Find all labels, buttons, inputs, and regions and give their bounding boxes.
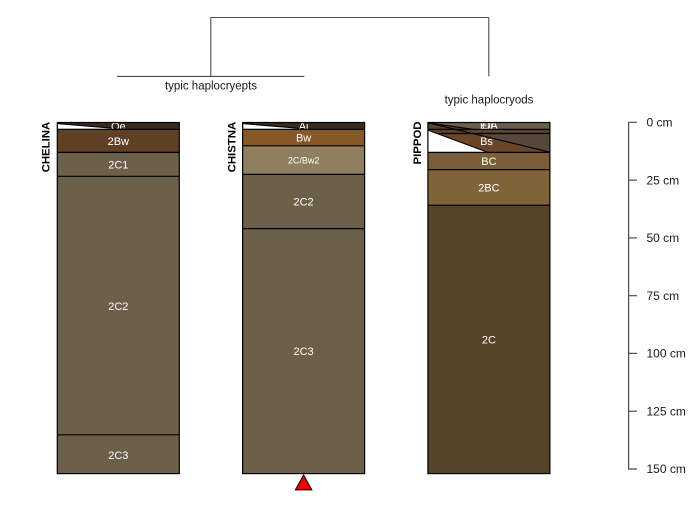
svg-text:2C3: 2C3 — [108, 450, 128, 462]
svg-text:25 cm: 25 cm — [647, 173, 680, 187]
svg-text:2BC: 2BC — [478, 182, 499, 194]
svg-text:125 cm: 125 cm — [647, 404, 686, 418]
svg-text:typic haplocryods: typic haplocryods — [445, 95, 534, 107]
svg-text:150 cm: 150 cm — [647, 462, 686, 476]
svg-text:2C2: 2C2 — [108, 301, 128, 313]
svg-text:2C3: 2C3 — [294, 346, 314, 358]
svg-text:2Bw: 2Bw — [108, 136, 129, 148]
svg-text:0 cm: 0 cm — [647, 116, 673, 130]
svg-text:2C/Bw2: 2C/Bw2 — [288, 155, 320, 165]
svg-text:75 cm: 75 cm — [647, 289, 680, 303]
svg-text:2C1: 2C1 — [108, 159, 128, 171]
svg-text:PIPPOD: PIPPOD — [412, 121, 424, 164]
svg-text:2C2: 2C2 — [294, 196, 314, 208]
svg-text:Bs: Bs — [480, 136, 493, 148]
svg-text:50 cm: 50 cm — [647, 231, 680, 245]
svg-text:100 cm: 100 cm — [647, 347, 686, 361]
svg-text:Bw: Bw — [296, 133, 311, 145]
svg-text:CHELINA: CHELINA — [41, 122, 53, 173]
svg-text:2C: 2C — [482, 334, 496, 346]
svg-text:typic haplocryepts: typic haplocryepts — [165, 81, 257, 93]
svg-text:E/A: E/A — [480, 120, 498, 132]
svg-text:CHISTNA: CHISTNA — [227, 122, 239, 173]
svg-text:BC: BC — [481, 156, 496, 168]
